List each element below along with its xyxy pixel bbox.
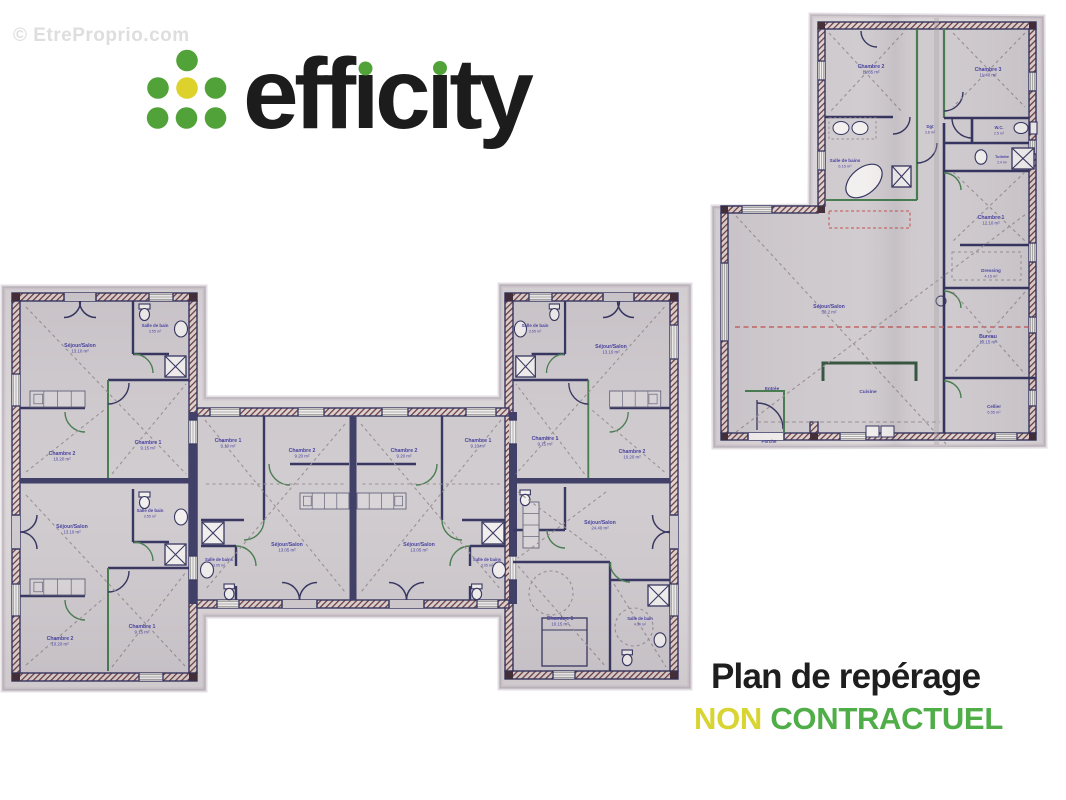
- svg-text:Salle de bains: Salle de bains: [205, 557, 234, 562]
- svg-text:9.20 m²: 9.20 m²: [397, 454, 412, 459]
- svg-text:6.55 m²: 6.55 m²: [987, 410, 1001, 415]
- svg-text:13.10 m²: 13.10 m²: [602, 350, 620, 355]
- svg-text:53.2 m²: 53.2 m²: [822, 310, 837, 315]
- svg-text:3.55 m²: 3.55 m²: [529, 330, 542, 334]
- svg-text:4.90 m²: 4.90 m²: [634, 623, 647, 627]
- svg-text:Salle de bain: Salle de bain: [627, 616, 653, 621]
- svg-text:9.10 m²: 9.10 m²: [471, 444, 486, 449]
- svg-text:13.05 m²: 13.05 m²: [410, 548, 428, 553]
- svg-text:Salle de bains: Salle de bains: [473, 557, 502, 562]
- svg-text:Dressing: Dressing: [981, 268, 1001, 273]
- svg-text:Porche: Porche: [762, 439, 777, 444]
- svg-text:3.05 m²: 3.05 m²: [481, 564, 494, 568]
- svg-text:13.10 m²: 13.10 m²: [71, 349, 89, 354]
- svg-text:Salle de bain: Salle de bain: [137, 508, 164, 513]
- svg-text:13.10 m²: 13.10 m²: [63, 530, 81, 535]
- svg-text:Salle de bain: Salle de bain: [142, 323, 169, 328]
- svg-text:Cuisine: Cuisine: [859, 389, 877, 395]
- svg-text:9.15 m²: 9.15 m²: [538, 442, 553, 447]
- svg-text:9.20 m²: 9.20 m²: [295, 454, 310, 459]
- svg-text:3.55 m²: 3.55 m²: [149, 330, 162, 334]
- svg-text:13.05 m²: 13.05 m²: [278, 548, 296, 553]
- svg-text:9.15 m²: 9.15 m²: [141, 446, 156, 451]
- svg-text:3.05 m²: 3.05 m²: [213, 564, 226, 568]
- svg-text:12.10 m²: 12.10 m²: [982, 221, 1000, 226]
- svg-text:10.20 m²: 10.20 m²: [51, 642, 69, 647]
- svg-text:Cellier: Cellier: [987, 404, 1001, 409]
- svg-text:4.15 m²: 4.15 m²: [984, 274, 998, 279]
- svg-text:Entrée: Entrée: [765, 386, 780, 391]
- svg-text:10.20 m²: 10.20 m²: [53, 457, 71, 462]
- svg-text:10.15 m²: 10.15 m²: [551, 622, 569, 627]
- svg-text:24.40 m²: 24.40 m²: [591, 526, 609, 531]
- svg-text:10.20 m²: 10.20 m²: [623, 455, 641, 460]
- svg-text:10.15 m²: 10.15 m²: [979, 340, 997, 345]
- svg-text:Salle de bain: Salle de bain: [522, 323, 549, 328]
- svg-text:9.15 m²: 9.15 m²: [135, 630, 150, 635]
- svg-text:9.10 m²: 9.10 m²: [221, 444, 236, 449]
- svg-text:3.55 m²: 3.55 m²: [144, 515, 157, 519]
